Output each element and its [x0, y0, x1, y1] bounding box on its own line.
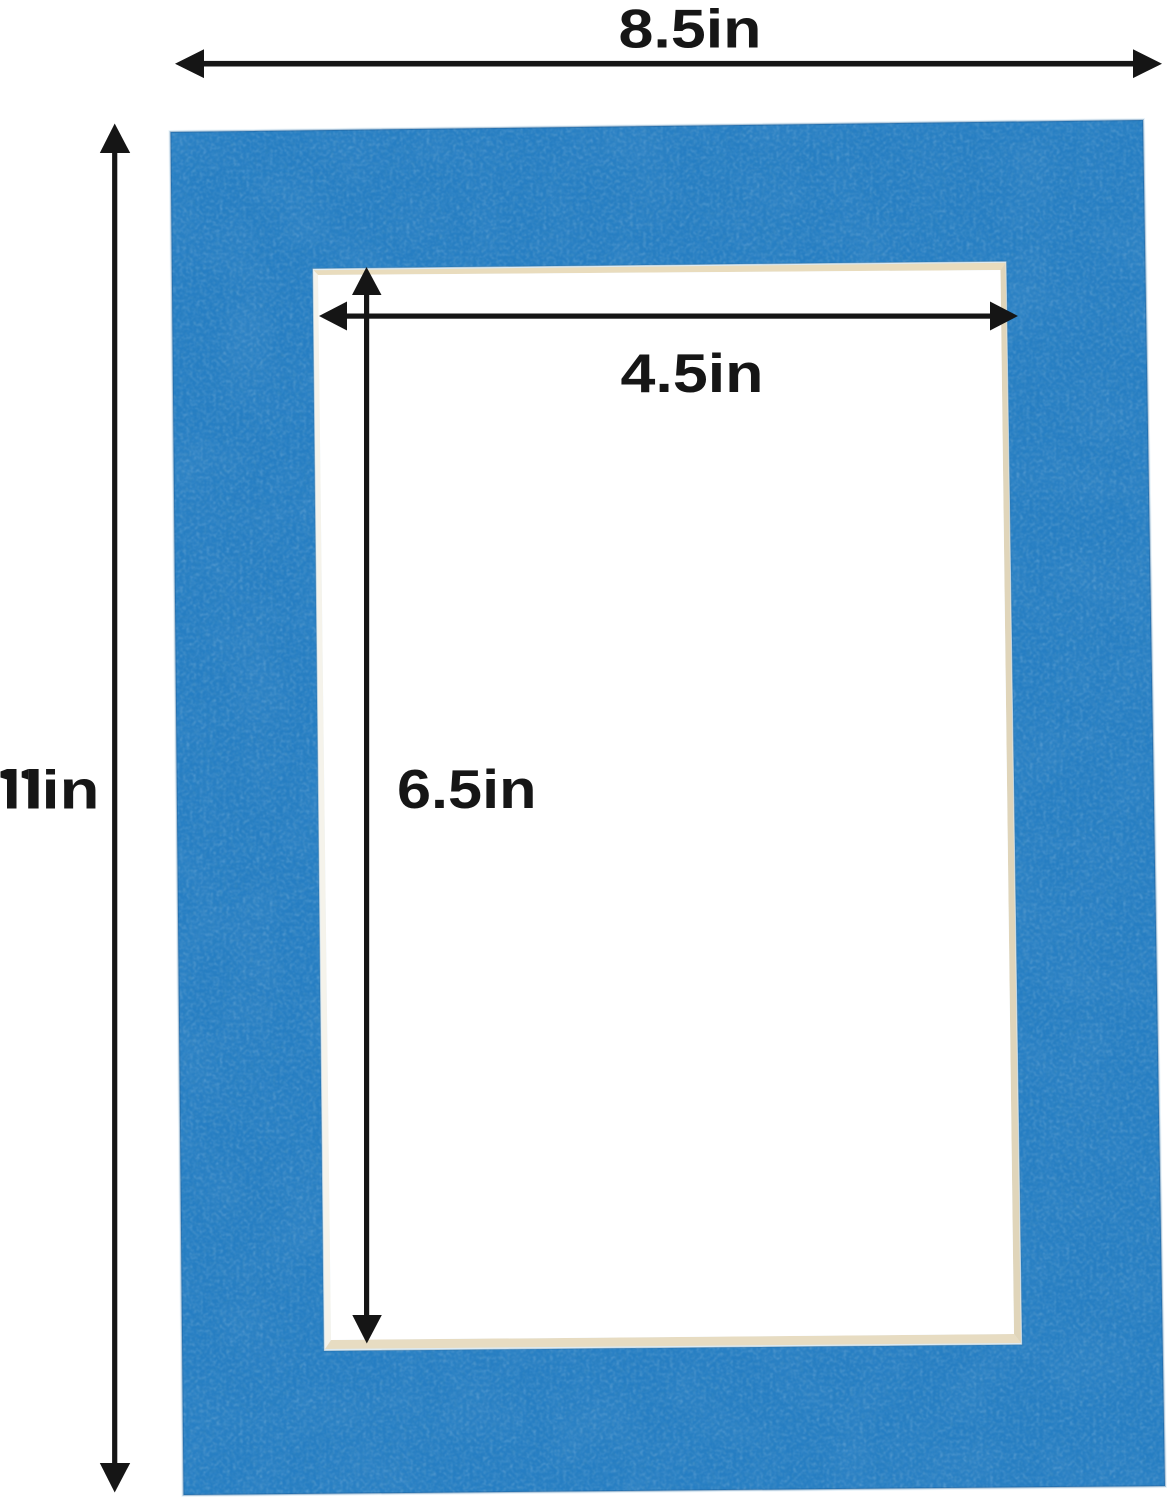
svg-text:8.5in: 8.5in — [619, 0, 762, 60]
svg-text:4.5in: 4.5in — [621, 342, 764, 404]
svg-text:in: in — [42, 759, 100, 821]
svg-text:6.5in: 6.5in — [397, 758, 537, 820]
